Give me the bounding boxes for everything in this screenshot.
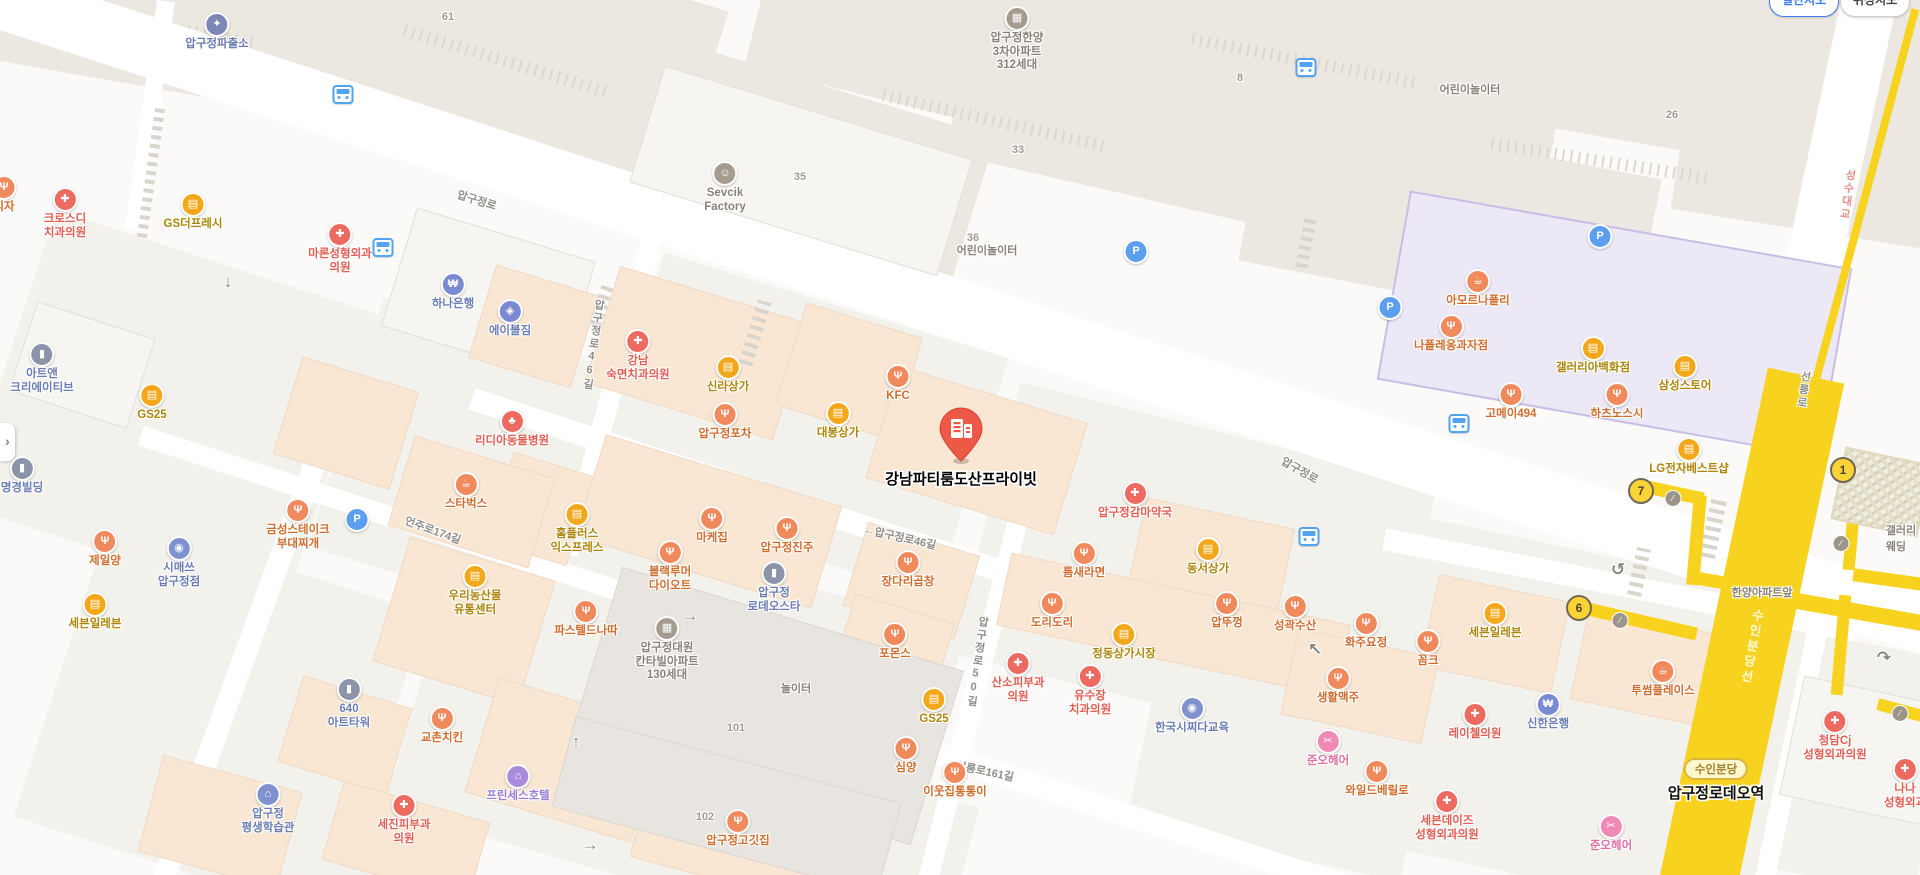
poi-edu[interactable]: ◉시매쓰압구정점	[158, 536, 200, 589]
poi-name: 압구정대원칸타빌아파트130세대	[635, 642, 698, 683]
edu-icon: ◉	[166, 536, 191, 561]
poi-food[interactable]: ΨKFC	[886, 364, 911, 404]
poi-name: 마론성형외과의원	[308, 248, 371, 275]
shop-icon: ▤	[139, 383, 164, 408]
poi-food[interactable]: Ψ압구정고깃집	[706, 809, 769, 849]
subway-exit-1[interactable]: 1	[1830, 457, 1856, 483]
poi-name: 고메이494	[1486, 408, 1537, 422]
poi-hair[interactable]: ✂준오헤어	[1307, 729, 1349, 769]
poi-name: 제일양	[89, 555, 121, 569]
poi-bank[interactable]: ₩신한은행	[1527, 692, 1569, 732]
bus-stop-icon[interactable]	[1449, 414, 1470, 433]
poi-name: 포몬스	[879, 648, 911, 662]
poi-name: 마케집	[696, 532, 728, 546]
poi-name: 압구정평생학습관	[242, 808, 295, 835]
food-icon: Ψ	[886, 364, 911, 389]
poi-food[interactable]: Ψ성곽수산	[1274, 594, 1316, 634]
poi-name: 교촌치킨	[421, 732, 463, 746]
poi-shop[interactable]: ▤GS25	[137, 383, 166, 423]
medical-icon: ✚	[1892, 757, 1917, 782]
food-icon: Ψ	[1439, 314, 1464, 339]
road-label: 압구정로	[455, 186, 498, 213]
food-icon: Ψ	[883, 622, 908, 647]
poi-name: 리디아동물병원	[475, 435, 549, 449]
poi-medical[interactable]: ✚강남숙면치과의원	[606, 329, 669, 382]
poi-medical[interactable]: ✚세븐데이즈성형외과의원	[1415, 789, 1478, 842]
building-icon: ▮	[336, 677, 361, 702]
poi-food[interactable]: Ψ생활맥주	[1317, 666, 1359, 706]
poi-medical[interactable]: ✚청담Cj성형외과의원	[1803, 709, 1866, 762]
poi-food[interactable]: Ψ고메이494	[1486, 382, 1537, 422]
shop-icon: ▤	[1581, 336, 1606, 361]
building-icon: ▮	[762, 561, 787, 586]
poi-name: 아트앤크리에이티브	[10, 368, 73, 395]
cafe-icon: ☕	[453, 472, 478, 497]
poi-name: 압구정로데오스타	[748, 587, 801, 614]
poi-name: 하츠노스시	[1591, 408, 1644, 422]
food-icon: Ψ	[1499, 382, 1524, 407]
poi-shop[interactable]: ▤세븐일레븐	[1469, 601, 1522, 641]
poi-name: 한국시찌다교육	[1155, 722, 1229, 736]
poi-name: 나나성형외과	[1884, 783, 1920, 810]
poi-name: 압구정감마약국	[1098, 507, 1172, 521]
poi-name: 유수장치과의원	[1069, 690, 1111, 717]
building-number: 61	[442, 11, 454, 23]
poi-food[interactable]: Ψ피자	[0, 175, 17, 215]
poi-name: 640아트타워	[328, 703, 370, 730]
poi-name: 나폴레옹과자점	[1414, 340, 1488, 354]
poi-parking[interactable]: P	[1378, 295, 1403, 320]
food-icon: Ψ	[1605, 382, 1630, 407]
poi-name: 투썸플레이스	[1631, 685, 1694, 699]
subway-exit-6[interactable]: 6	[1566, 595, 1592, 621]
bus-stop-icon[interactable]	[1296, 58, 1317, 77]
food-icon: Ψ	[93, 529, 118, 554]
food-icon: Ψ	[894, 736, 919, 761]
edu-icon: ◉	[1180, 696, 1205, 721]
food-icon: Ψ	[1282, 594, 1307, 619]
poi-food[interactable]: Ψ화주요정	[1345, 611, 1387, 651]
poi-building[interactable]: ▮압구정로데오스타	[748, 561, 801, 614]
poi-shop[interactable]: ▤삼성스토어	[1659, 354, 1712, 394]
building-number: 26	[1666, 109, 1678, 121]
poi-name: 아모르나폴리	[1446, 295, 1509, 309]
poi-shop[interactable]: ▤홈플러스익스프레스	[551, 502, 604, 555]
map-type-button-normal[interactable]: 일반지도	[1769, 0, 1839, 17]
food-icon: Ψ	[573, 599, 598, 624]
bus-stop-icon[interactable]	[333, 85, 354, 104]
poi-police[interactable]: ✦압구정파출소	[185, 12, 248, 52]
side-panel-toggle[interactable]: ›	[0, 423, 15, 461]
poi-name: 크로스디치과의원	[44, 213, 86, 240]
building-icon: ▮	[9, 456, 34, 481]
poi-hair[interactable]: ✂준오헤어	[1590, 814, 1632, 854]
poi-cafe[interactable]: ☕아모르나폴리	[1446, 269, 1509, 309]
poi-cafe[interactable]: ☕스타벅스	[445, 472, 487, 512]
poi-name: 신라상가	[707, 381, 749, 395]
area-label: 놀이터	[781, 680, 811, 696]
escalator-icon: ∕	[1833, 535, 1850, 552]
pharmacy-icon: ✚	[1123, 481, 1148, 506]
poi-name: 프린세스호텔	[486, 790, 549, 804]
parking-icon: P	[345, 507, 370, 532]
poi-cafe[interactable]: ☕투썸플레이스	[1631, 659, 1694, 699]
poi-shop[interactable]: ▤신라상가	[707, 355, 749, 395]
poi-name: GS25	[137, 409, 166, 423]
cafe-icon: ☕	[1465, 269, 1490, 294]
poi-food[interactable]: Ψ블랙루머다이오트	[649, 540, 691, 593]
poi-food[interactable]: Ψ금성스테이크부대찌개	[266, 498, 329, 551]
poi-name: 압구정진주	[761, 542, 814, 556]
subway-station-label[interactable]: 수인분당 압구정로데오역	[1668, 758, 1765, 803]
gym-icon: ◈	[497, 299, 522, 324]
oneway-arrow-icon: ↺	[1611, 560, 1625, 580]
smile-icon: ☺	[712, 161, 737, 186]
poi-building[interactable]: ▮아트앤크리에이티브	[10, 342, 73, 395]
food-icon: Ψ	[1353, 611, 1378, 636]
poi-name: 준오헤어	[1307, 755, 1349, 769]
parking-icon: P	[1378, 295, 1403, 320]
poi-building[interactable]: ▮640아트타워	[328, 677, 370, 730]
public-icon: ⌂	[256, 782, 281, 807]
poi-pharmacy[interactable]: ✚압구정감마약국	[1098, 481, 1172, 521]
poi-parking[interactable]: P	[1124, 239, 1149, 264]
poi-food[interactable]: Ψ압뚜껑	[1211, 591, 1243, 631]
medical-icon: ✚	[52, 187, 77, 212]
poi-shop[interactable]: ▤우리농산물유통센터	[449, 564, 502, 617]
oneway-arrow-icon: ↑	[572, 732, 581, 752]
poi-name: 생활맥주	[1317, 692, 1359, 706]
poi-name: 파스텔드나따	[554, 625, 617, 639]
poi-name: 강남숙면치과의원	[606, 355, 669, 382]
parking-icon: P	[1124, 239, 1149, 264]
area-label: 갤러리웨딩	[1886, 522, 1916, 554]
area-label: 어린이놀이터	[957, 242, 1018, 258]
food-icon: Ψ	[725, 809, 750, 834]
poi-shop[interactable]: ▤대봉상가	[817, 401, 859, 441]
shop-icon: ▤	[181, 192, 206, 217]
medical-icon: ✚	[1077, 664, 1102, 689]
poi-food[interactable]: Ψ포몬스	[879, 622, 911, 662]
poi-name: 준오헤어	[1590, 840, 1632, 854]
poi-name: 피자	[0, 201, 15, 215]
medical-icon: ✚	[1463, 702, 1488, 727]
area-label: 어린이놀이터	[1440, 81, 1501, 97]
building-number: 33	[1012, 144, 1024, 156]
poi-food[interactable]: Ψ압구정포차	[699, 402, 752, 442]
oneway-arrow-icon: ↓	[224, 272, 233, 292]
poi-name: 도리도리	[1031, 617, 1073, 631]
poi-name: 홈플러스익스프레스	[551, 528, 604, 555]
poi-shop[interactable]: ▤세븐일레븐	[69, 592, 122, 632]
poi-food[interactable]: Ψ와일드베릴로	[1345, 759, 1408, 799]
poi-name: 우리농산물유통센터	[449, 590, 502, 617]
poi-parking[interactable]: P	[1588, 224, 1613, 249]
medical-icon: ✚	[625, 329, 650, 354]
poi-name: 심양	[895, 762, 916, 776]
poi-medical[interactable]: ✚세진피부과의원	[378, 793, 431, 846]
poi-shop[interactable]: ▤GS25	[919, 687, 948, 727]
poi-name: GS더프레시	[164, 218, 223, 232]
building-number: 8	[1237, 72, 1243, 84]
building-number: 35	[794, 171, 806, 183]
poi-food[interactable]: Ψ꼼크	[1416, 629, 1441, 669]
shop-icon: ▤	[825, 401, 850, 426]
poi-name: 산소피부과의원	[992, 677, 1045, 704]
poi-name: 에이블짐	[489, 325, 531, 339]
poi-food[interactable]: Ψ나폴레옹과자점	[1414, 314, 1488, 354]
food-icon: Ψ	[942, 760, 967, 785]
shop-icon: ▤	[1673, 354, 1698, 379]
shop-icon: ▤	[83, 592, 108, 617]
food-icon: Ψ	[775, 516, 800, 541]
poi-name: 압뚜껑	[1211, 617, 1243, 631]
apartment-icon: ▦	[1005, 6, 1030, 31]
poi-name: 대봉상가	[817, 427, 859, 441]
shop-icon: ▤	[565, 502, 590, 527]
poi-shop[interactable]: ▤동서상가	[1187, 537, 1229, 577]
poi-name: LG전자베스트샵	[1649, 463, 1728, 477]
medical-icon: ✚	[327, 222, 352, 247]
escalator-icon: ∕	[1612, 612, 1629, 629]
poi-food[interactable]: Ψ제일양	[89, 529, 121, 569]
poi-name: 와일드베릴로	[1345, 785, 1408, 799]
poi-parking[interactable]: P	[345, 507, 370, 532]
poi-food[interactable]: Ψ파스텔드나따	[554, 599, 617, 639]
poi-name: 금성스테이크부대찌개	[266, 524, 329, 551]
food-icon: Ψ	[896, 550, 921, 575]
poi-medical[interactable]: ✚산소피부과의원	[992, 651, 1045, 704]
food-icon: Ψ	[700, 506, 725, 531]
poi-shop[interactable]: ▤GS더프레시	[164, 192, 223, 232]
poi-paw[interactable]: ♣리디아동물병원	[475, 409, 549, 449]
bus-stop-icon[interactable]	[373, 238, 394, 257]
shop-icon: ▤	[1195, 537, 1220, 562]
building-icon: ▮	[29, 342, 54, 367]
food-icon: Ψ	[1416, 629, 1441, 654]
shop-icon: ▤	[463, 564, 488, 589]
poi-name: 압구정고깃집	[706, 835, 769, 849]
shop-icon: ▤	[715, 355, 740, 380]
oneway-arrow-icon: ↖	[1308, 640, 1322, 660]
poi-shop[interactable]: ▤갤러리아백화점	[1556, 336, 1630, 376]
poi-food[interactable]: Ψ하츠노스시	[1591, 382, 1644, 422]
poi-name: 정동상가시장	[1092, 648, 1155, 662]
poi-medical[interactable]: ✚나나성형외과	[1884, 757, 1920, 810]
hotel-icon: ⌂	[505, 764, 530, 789]
food-icon: Ψ	[657, 540, 682, 565]
poi-medical[interactable]: ✚마론성형외과의원	[308, 222, 371, 275]
parking-icon: P	[1588, 224, 1613, 249]
food-icon: Ψ	[1039, 591, 1064, 616]
station-name: 압구정로데오역	[1668, 782, 1765, 803]
bank-icon: ₩	[440, 272, 465, 297]
poi-medical[interactable]: ✚레이첼의원	[1449, 702, 1502, 742]
poi-name: GS25	[919, 713, 948, 727]
poi-name: 압구정한양3차아파트312세대	[991, 32, 1044, 73]
shop-icon: ▤	[1111, 622, 1136, 647]
building-number: 101	[727, 722, 745, 734]
food-icon: Ψ	[1364, 759, 1389, 784]
bus-stop-icon[interactable]	[1299, 527, 1320, 546]
poi-public[interactable]: ⌂압구정평생학습관	[242, 782, 295, 835]
medical-icon: ✚	[392, 793, 417, 818]
medical-icon: ✚	[1006, 651, 1031, 676]
poi-name: KFC	[886, 390, 910, 404]
poi-name: 청담Cj성형외과의원	[1803, 735, 1866, 762]
paw-icon: ♣	[500, 409, 525, 434]
poi-edu[interactable]: ◉한국시찌다교육	[1155, 696, 1229, 736]
poi-name: SevcikFactory	[704, 187, 746, 214]
poi-name: 이웃집통통이	[923, 786, 986, 800]
police-icon: ✦	[204, 12, 229, 37]
escalator-icon: ∕	[1665, 490, 1682, 507]
poi-building[interactable]: ▮명경빌딩	[1, 456, 43, 496]
shop-icon: ▤	[921, 687, 946, 712]
shop-icon: ▤	[1483, 601, 1508, 626]
poi-name: 블랙루머다이오트	[649, 566, 691, 593]
poi-hotel[interactable]: ⌂프린세스호텔	[486, 764, 549, 804]
bank-icon: ₩	[1535, 692, 1560, 717]
poi-gym[interactable]: ◈에이블짐	[489, 299, 531, 339]
medical-icon: ✚	[1434, 789, 1459, 814]
food-icon: Ψ	[285, 498, 310, 523]
food-icon: Ψ	[1215, 591, 1240, 616]
poi-food[interactable]: Ψ압구정진주	[761, 516, 814, 556]
poi-name: 시매쓰압구정점	[158, 562, 200, 589]
oneway-arrow-icon: →	[582, 835, 599, 855]
poi-food[interactable]: Ψ도리도리	[1031, 591, 1073, 631]
poi-food[interactable]: Ψ이웃집통통이	[923, 760, 986, 800]
poi-food[interactable]: Ψ마케집	[696, 506, 728, 546]
shop-icon: ▤	[1676, 437, 1701, 462]
poi-name: 꼼크	[1417, 655, 1438, 669]
apartment-icon: ▦	[654, 616, 679, 641]
food-icon: Ψ	[429, 706, 454, 731]
poi-name: 세븐일레븐	[1469, 627, 1522, 641]
poi-name: 명경빌딩	[1, 482, 43, 496]
poi-bank[interactable]: ₩하나은행	[432, 272, 474, 312]
poi-name: 압구정파출소	[185, 38, 248, 52]
poi-food[interactable]: Ψ심양	[894, 736, 919, 776]
poi-apartment[interactable]: ▦압구정한양3차아파트312세대	[991, 6, 1044, 73]
hair-icon: ✂	[1315, 729, 1340, 754]
poi-name: 갤러리아백화점	[1556, 362, 1630, 376]
poi-name: 틈새라면	[1063, 567, 1105, 581]
poi-food[interactable]: Ψ틈새라면	[1063, 541, 1105, 581]
food-icon: Ψ	[1071, 541, 1096, 566]
escalator-icon: ∕	[1892, 705, 1909, 722]
poi-apartment[interactable]: ▦압구정대원칸타빌아파트130세대	[635, 616, 698, 683]
medical-icon: ✚	[1822, 709, 1847, 734]
oneway-arrow-icon: ↷	[1877, 648, 1891, 668]
subway-line-badge: 수인분당	[1684, 758, 1748, 780]
poi-name: 동서상가	[1187, 563, 1229, 577]
poi-food[interactable]: Ψ장다리곱창	[882, 550, 935, 590]
poi-name: 세븐데이즈성형외과의원	[1415, 815, 1478, 842]
poi-name: 성곽수산	[1274, 620, 1316, 634]
poi-name: 화주요정	[1345, 637, 1387, 651]
poi-name: 레이첼의원	[1449, 728, 1502, 742]
poi-name: 삼성스토어	[1659, 380, 1712, 394]
map-type-button-satellite[interactable]: 위성지도	[1840, 0, 1910, 17]
poi-smile[interactable]: ☺SevcikFactory	[704, 161, 746, 214]
poi-name: 하나은행	[432, 298, 474, 312]
food-icon: Ψ	[0, 175, 17, 200]
selected-place-marker[interactable]	[939, 407, 983, 470]
poi-name: 장다리곱창	[882, 576, 935, 590]
poi-name: 압구정포차	[699, 428, 752, 442]
selected-place-label[interactable]: 강남파티룸도산프라이빗	[885, 468, 1037, 489]
area-label: 한양아파트앞	[1732, 584, 1793, 600]
poi-name: 세븐일레븐	[69, 618, 122, 632]
poi-shop[interactable]: ▤LG전자베스트샵	[1649, 437, 1728, 477]
poi-medical[interactable]: ✚크로스디치과의원	[44, 187, 86, 240]
food-icon: Ψ	[713, 402, 738, 427]
poi-name: 세진피부과의원	[378, 819, 431, 846]
hair-icon: ✂	[1598, 814, 1623, 839]
poi-name: 신한은행	[1527, 718, 1569, 732]
map-canvas[interactable]: 수인분당선 ✦압구정파출소61▦압구정한양3차아파트312세대8어린이놀이터26…	[0, 0, 1920, 875]
food-icon: Ψ	[1325, 666, 1350, 691]
poi-shop[interactable]: ▤정동상가시장	[1092, 622, 1155, 662]
poi-food[interactable]: Ψ교촌치킨	[421, 706, 463, 746]
poi-name: 스타벅스	[445, 498, 487, 512]
subway-exit-7[interactable]: 7	[1628, 478, 1654, 504]
cafe-icon: ☕	[1650, 659, 1675, 684]
map-pin-icon	[939, 407, 983, 465]
poi-medical[interactable]: ✚유수장치과의원	[1069, 664, 1111, 717]
